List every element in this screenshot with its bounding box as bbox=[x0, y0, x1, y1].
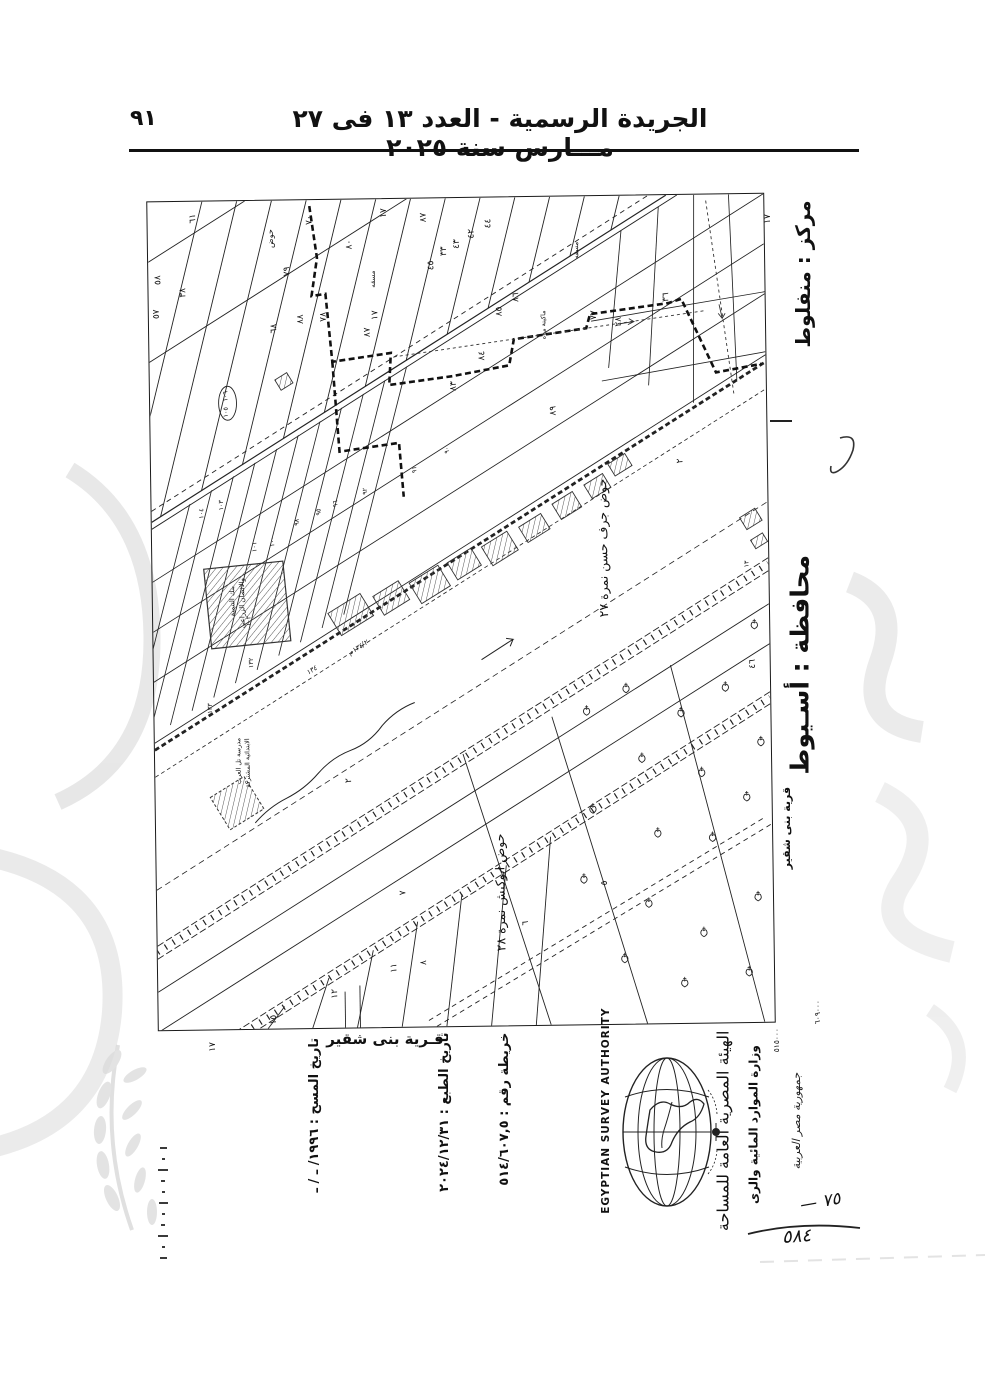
map-label: بنك التنمية bbox=[228, 586, 236, 617]
parcel-number: ٧٠ bbox=[304, 215, 314, 225]
parcel-number: ٢٨ bbox=[614, 317, 624, 327]
parcel-number: ٦٨ bbox=[269, 323, 279, 333]
grid-northing: ٥١٥٠٠٠ bbox=[773, 1015, 781, 1065]
parcel-number: ٤٥ bbox=[426, 260, 436, 270]
tree-symbol bbox=[623, 683, 629, 693]
village-side-label: قرية بنى شقير bbox=[781, 768, 793, 888]
tree-symbol bbox=[655, 827, 661, 837]
map-label: الابتدائية المشتركة bbox=[243, 738, 252, 788]
parcel-number: ١٥ bbox=[269, 1015, 279, 1025]
parcel-number: ٢ bbox=[344, 778, 354, 783]
map-label: حوض ابوكبش نمرة ٢٨ bbox=[492, 834, 510, 952]
parcel-number: ٥٧ bbox=[152, 309, 162, 319]
parcel-number: ٤٦ bbox=[748, 659, 758, 669]
tree-symbol bbox=[682, 977, 688, 987]
building-hatch bbox=[519, 513, 550, 542]
parcel-number: ٩٠ bbox=[443, 447, 451, 454]
tree-symbol bbox=[755, 891, 761, 901]
parcel-number: ٤٣ bbox=[452, 239, 462, 249]
handwritten-number-75: — ٧٥ bbox=[799, 1189, 843, 1216]
ministry-arabic: وزارة الموارد المائية والرى bbox=[747, 1010, 760, 1240]
parcel-number: ١١ bbox=[389, 963, 399, 973]
parcel-number: ١٣٣ bbox=[206, 703, 214, 714]
handwritten-km-marker: ١٣٤/٢م bbox=[347, 638, 371, 657]
tree-symbol bbox=[583, 705, 589, 715]
parcel-number: ١٠٢ bbox=[244, 615, 252, 626]
parcel-number: ٦١ bbox=[188, 214, 198, 224]
tree-symbol bbox=[646, 897, 652, 907]
grid-easting: ٦٠٩٠٠٠ bbox=[814, 987, 822, 1037]
parcel-number: ٢ bbox=[675, 458, 685, 463]
map-label: ماكينة مياه bbox=[539, 310, 547, 339]
tree-symbol bbox=[698, 767, 704, 777]
parcel-number: ٣٣ bbox=[439, 246, 449, 256]
parcel-number: ١٢ bbox=[330, 989, 340, 999]
parcel-number: ١٧ bbox=[370, 310, 380, 320]
parcel-number: ١٣٢ bbox=[247, 657, 255, 668]
parcel-number: ٨٧ bbox=[363, 327, 373, 337]
building-hatch bbox=[740, 508, 763, 529]
svg-text:١٠٥: ١٠٥ bbox=[222, 406, 230, 417]
parcel-number: ١٠٠ bbox=[268, 536, 276, 547]
page-number: ٩١ bbox=[130, 106, 190, 131]
scan-ruler-marks bbox=[156, 1138, 170, 1268]
building-hatch bbox=[409, 565, 450, 603]
tree-symbol bbox=[744, 791, 750, 801]
building-hatch bbox=[552, 492, 582, 520]
building-hatch bbox=[275, 373, 293, 391]
tree-symbol bbox=[581, 873, 587, 883]
parcel-number: ٨٩ bbox=[549, 406, 559, 416]
parcel-number: ١٠١ bbox=[250, 542, 258, 553]
parcel-number: ١٠٤ bbox=[197, 508, 205, 519]
building-hatch bbox=[751, 533, 768, 549]
building-hatch bbox=[608, 454, 632, 476]
parcel-number: ٨٤ bbox=[477, 351, 487, 361]
cadastral-map: ١٠٦ ١٠٥ حوض جرف حسن نمرة ٢٧حوض ابوكبش نم… bbox=[147, 194, 775, 1031]
parcel-number: ١٧ bbox=[379, 208, 389, 218]
governorate-label: محافظة : أسـيوط bbox=[786, 530, 814, 800]
parcel-number: ٨٨ bbox=[296, 314, 306, 324]
frame-grid-tick bbox=[770, 420, 792, 422]
parcel-number: ١٠٣ bbox=[217, 500, 225, 511]
esa-logo bbox=[612, 1050, 722, 1215]
parcel-number: ٤٢ bbox=[467, 229, 477, 239]
handwritten-number-584: ٥٨٤ bbox=[781, 1225, 811, 1248]
parcel-number: ٨٠ bbox=[344, 240, 354, 250]
svg-text:١٠٦: ١٠٦ bbox=[221, 390, 229, 401]
map-label: حوض جرف حسن نمرة ٢٧ bbox=[594, 479, 612, 618]
map-label: مدرسة تل العرب bbox=[234, 738, 243, 784]
parcel-number: ٧ bbox=[398, 890, 408, 895]
parcel-number: ٨٣ bbox=[449, 381, 459, 391]
parcel-number: ٧٩ bbox=[282, 266, 292, 276]
building-hatch bbox=[447, 548, 481, 580]
tree-symbol bbox=[639, 752, 645, 762]
bank-parcel bbox=[204, 561, 291, 649]
tree-symbol bbox=[751, 619, 757, 629]
cadastral-map-frame: ١٠٦ ١٠٥ حوض جرف حسن نمرة ٢٧حوض ابوكبش نم… bbox=[146, 193, 776, 1032]
parcel-number: ٨ bbox=[419, 960, 429, 965]
parcel-number: ٦ bbox=[521, 920, 531, 925]
handwritten-corridor-note bbox=[244, 638, 516, 823]
markaz-label: مركز : منفلوط bbox=[792, 159, 814, 389]
watermark-laurel bbox=[93, 1045, 157, 1230]
handwritten-country-note: جمهورية مصر العربية bbox=[791, 1036, 803, 1206]
map-label: مسقه bbox=[369, 270, 377, 288]
tree-symbol bbox=[701, 927, 707, 937]
parcel-number: ٤٤ bbox=[483, 218, 493, 228]
parcel-number: ٨٥ bbox=[494, 306, 504, 316]
gazette-header-title: الجريدة الرسمية - العدد ١٣ فى ٢٧ مـــارس… bbox=[250, 104, 750, 162]
map-label: حوض bbox=[266, 229, 275, 248]
print-date: تاريخ الطبع : ٢٠٢٤/١٢/٣١ bbox=[438, 997, 452, 1227]
building-hatch bbox=[481, 531, 518, 566]
parcel-number: ٥٨ bbox=[153, 275, 163, 285]
parcel-number: ١٣ bbox=[742, 560, 750, 568]
scan-noise-dashes bbox=[760, 1255, 985, 1262]
parcel-number: ٩٥ bbox=[314, 508, 322, 516]
parcel-number: ٣٦ bbox=[661, 292, 671, 302]
map-number: خريطة رقم : ٥١٤/٦٠٧,٥ bbox=[498, 989, 512, 1229]
parcel-oval-106-105: ١٠٦ ١٠٥ bbox=[218, 386, 236, 420]
parcel-number: ٩٨ bbox=[293, 518, 301, 526]
survey-date: تاريخ المسح : ١٩٩٦/ ـ / ـ bbox=[308, 1000, 322, 1230]
parcel-number: ٥ bbox=[600, 880, 610, 885]
parcel-number: ٨٧ bbox=[419, 212, 429, 222]
village-boundary bbox=[309, 200, 763, 498]
parcel-number: ٩٢ bbox=[361, 487, 369, 495]
tree-symbol bbox=[758, 736, 764, 746]
header-rule bbox=[129, 149, 859, 152]
parcel-strips-upper bbox=[147, 196, 623, 533]
parcel-number: ٩١ bbox=[410, 466, 418, 473]
direction-arrow bbox=[481, 638, 513, 659]
parcel-number: ٧٨ bbox=[319, 312, 329, 322]
parcel-number: ٣٨ bbox=[178, 288, 188, 298]
handwritten-meem-mark bbox=[831, 437, 854, 473]
parcel-number: ٨٦ bbox=[511, 292, 521, 302]
grid-tick-top-right: ١٧ bbox=[764, 208, 774, 230]
grid-tick-bottom-left: ١٧ bbox=[209, 1036, 219, 1058]
tree-symbol bbox=[722, 681, 728, 691]
building-hatch bbox=[373, 581, 410, 616]
map-label: مسقه bbox=[572, 241, 580, 259]
parcel-number: ٩٦ bbox=[331, 500, 339, 508]
tree-symbol bbox=[678, 707, 684, 717]
masqa-lines bbox=[392, 200, 734, 401]
parcel-number: ٧٧ bbox=[589, 310, 599, 320]
